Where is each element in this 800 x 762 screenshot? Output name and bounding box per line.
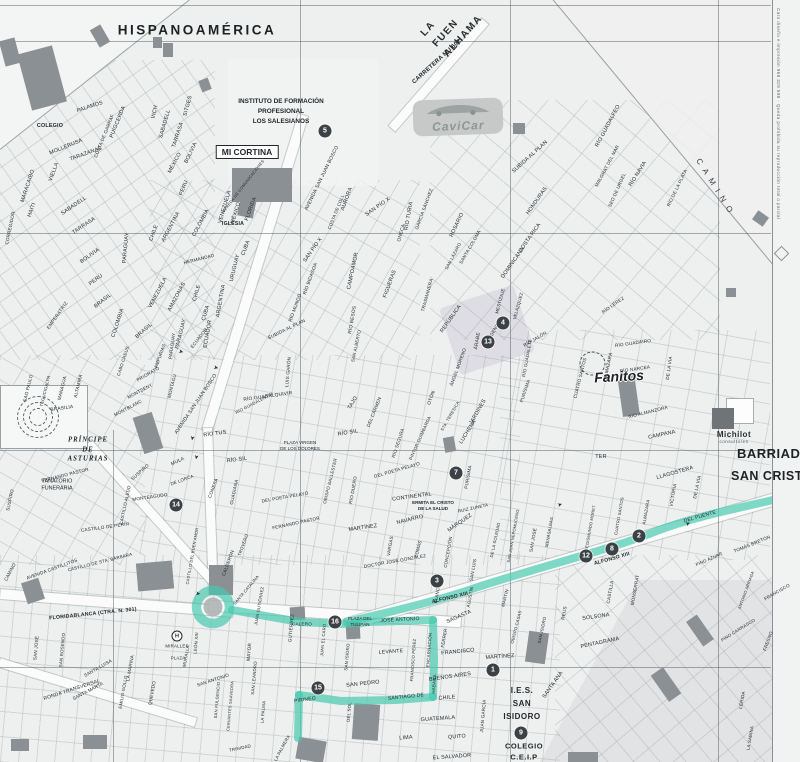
ermita-line1: ERMITA EL CRISTO	[412, 500, 454, 506]
hotel-icon: H	[172, 631, 183, 642]
landmark-tanatorio: TANATORIO FUNERARIA	[41, 479, 72, 494]
landmark-instituto-salesianos: INSTITUTO DE FORMACIÓN PROFESIONAL LOS S…	[238, 97, 323, 127]
building-block	[163, 43, 173, 57]
district-title-barriada: BARRIADA	[737, 446, 800, 461]
cavicar-logo: CaviCar	[412, 97, 503, 136]
street-label: COLEGIO	[37, 123, 63, 129]
building-block	[568, 752, 598, 762]
one-way-arrow-icon: ➤	[192, 454, 200, 460]
grid-line-v	[718, 0, 719, 762]
poi-marker-16: 16	[329, 616, 342, 629]
instituto-line1: INSTITUTO DE FORMACIÓN	[238, 97, 323, 107]
building-block	[209, 565, 233, 595]
michilot-logo-square-dark	[712, 408, 734, 429]
poi-marker-9: 9	[515, 727, 528, 740]
grid-line-h	[0, 450, 771, 451]
poi-marker-8: 8	[606, 543, 619, 556]
michilot-logo-text: Michilot	[706, 430, 762, 439]
grid-line-h	[0, 233, 771, 234]
building-block	[153, 37, 162, 48]
plaza-tulipan-line2: TULIPÁN	[348, 622, 372, 628]
building-block	[525, 630, 549, 663]
district-box-mi-cortina: MI CORTINA	[216, 145, 279, 159]
building-block	[11, 739, 29, 751]
michilot-logo: Michilot consultores	[706, 398, 762, 448]
copyright-text: Caro diseño e impresión 968 329 598 · Qu…	[776, 8, 781, 219]
plaza-dolores-line2: DE LOS DOLORES	[280, 446, 320, 452]
building-block	[136, 560, 174, 591]
street-label: QUITO	[448, 733, 466, 740]
principe-line1: PRÍNCIPE	[68, 436, 109, 446]
tanatorio-line2: FUNERARIA	[41, 486, 72, 493]
street-label: IGLESIA	[222, 221, 244, 227]
instituto-line3: LOS SALESIANOS	[238, 117, 323, 127]
plaza-dolores-line1: PLAZA VIRGEN	[280, 440, 320, 446]
district-principe-de-asturias: PRÍNCIPE DE ASTURIAS	[68, 436, 109, 465]
building-block	[513, 123, 525, 134]
poi-marker-7: 7	[450, 467, 463, 480]
grid-line-v	[113, 430, 114, 762]
car-icon	[423, 102, 493, 118]
district-title-hispanoamerica: HISPANOAMÉRICA	[118, 23, 277, 38]
poi-marker-2: 2	[633, 530, 646, 543]
landmark-plaza-dolores: PLAZA VIRGEN DE LOS DOLORES	[280, 440, 320, 452]
ies-line2: SAN	[503, 698, 540, 711]
landmark-ies-san-isidoro: I.E.S. SAN ISIDORO	[503, 685, 540, 723]
street-label: TER	[595, 454, 606, 460]
poi-marker-4: 4	[497, 317, 510, 330]
building-block	[726, 288, 736, 297]
poi-marker-5: 5	[319, 125, 332, 138]
grid-line-v	[510, 0, 511, 762]
city-map-canvas: PALAMOSMOLLERUSATARAZANASPUIGCERDACOSTA …	[0, 0, 800, 762]
poi-marker-3: 3	[431, 575, 444, 588]
poi-marker-15: 15	[312, 682, 325, 695]
tanatorio-line1: TANATORIO	[41, 479, 72, 486]
street-label: PLAZA	[171, 656, 185, 661]
building-block	[352, 703, 380, 741]
landmark-colegio-ceip: COLEGIO C.E.I.P	[505, 742, 543, 762]
ermita-line2: DE LA SALUD	[412, 506, 454, 512]
poi-marker-1: 1	[487, 664, 500, 677]
plaza-tulipan-line1: PLAZA DEL	[348, 616, 372, 622]
street-label: CHILE	[438, 694, 455, 701]
landmark-plaza-tulipan: PLAZA DEL TULIPÁN	[348, 616, 372, 628]
street-label: CALERO	[292, 622, 312, 627]
building-block	[442, 436, 455, 453]
landmark-ermita: ERMITA EL CRISTO DE LA SALUD	[412, 500, 454, 512]
grid-line-h	[0, 667, 771, 668]
street-label: LIMA	[399, 735, 413, 742]
colegio-line1: COLEGIO	[505, 742, 543, 753]
building-block	[83, 735, 107, 749]
principe-line3: ASTURIAS	[68, 455, 109, 465]
michilot-logo-subtext: consultores	[706, 439, 762, 444]
district-title-san-cristobal: SAN CRISTÓBAL	[731, 469, 800, 483]
poi-marker-14: 14	[170, 499, 183, 512]
grid-line-h	[0, 41, 771, 42]
cavicar-logo-text: CaviCar	[432, 118, 485, 134]
poi-marker-12: 12	[580, 550, 593, 563]
poi-marker-13: 13	[482, 336, 495, 349]
principe-line2: DE	[68, 445, 109, 455]
street-label: MIRALLES	[165, 644, 188, 649]
colegio-line2: C.E.I.P	[505, 752, 543, 762]
one-way-arrow-icon: ➤	[188, 435, 196, 441]
grid-line-h	[0, 5, 771, 6]
road-direction-la-fuen-alhama: LA FUEN ALHAMA	[417, 0, 487, 61]
ies-line3: ISIDORO	[503, 710, 540, 723]
building-block	[295, 737, 326, 762]
instituto-line2: PROFESIONAL	[238, 107, 323, 117]
ies-line1: I.E.S.	[503, 685, 540, 698]
